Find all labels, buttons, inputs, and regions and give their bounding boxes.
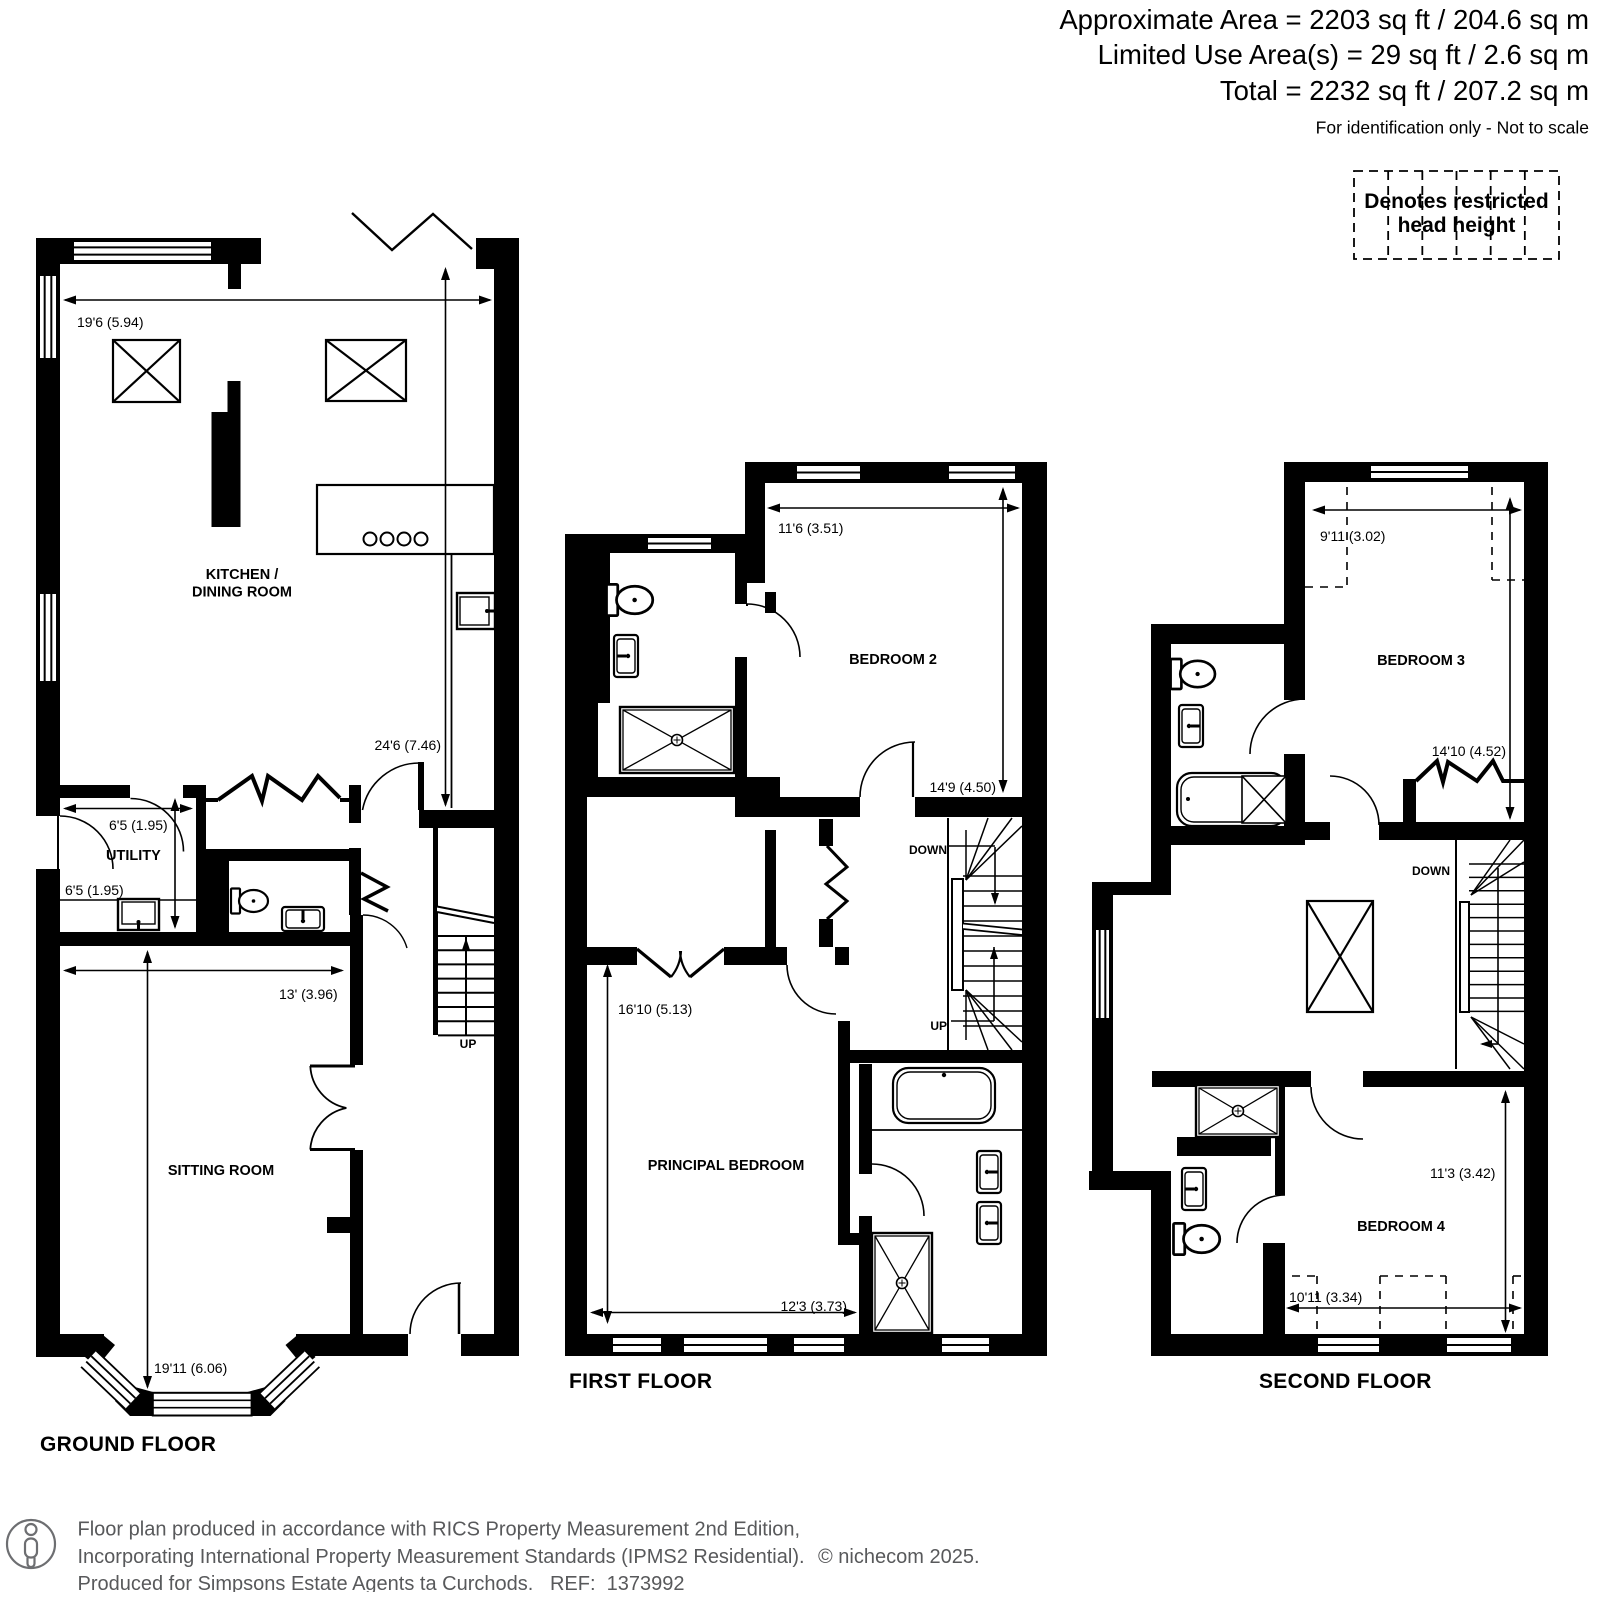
svg-text:© nichecom 2025.: © nichecom 2025. <box>818 1546 980 1568</box>
svg-text:DOWN: DOWN <box>909 843 947 857</box>
svg-text:FIRST FLOOR: FIRST FLOOR <box>569 1370 712 1393</box>
svg-text:UTILITY: UTILITY <box>106 848 161 864</box>
svg-text:BEDROOM 3: BEDROOM 3 <box>1377 653 1465 669</box>
svg-text:BEDROOM 2: BEDROOM 2 <box>849 652 937 668</box>
svg-text:11'6 (3.51): 11'6 (3.51) <box>778 520 843 536</box>
svg-text:Floor plan produced in accorda: Floor plan produced in accordance with R… <box>78 1519 801 1541</box>
svg-text:PRINCIPAL BEDROOM: PRINCIPAL BEDROOM <box>648 1158 805 1174</box>
svg-text:head height: head height <box>1398 214 1516 237</box>
svg-text:UP: UP <box>460 1037 477 1051</box>
svg-text:9'11 (3.02): 9'11 (3.02) <box>1320 528 1385 544</box>
svg-text:6'5 (1.95): 6'5 (1.95) <box>65 882 124 898</box>
svg-text:6'5 (1.95): 6'5 (1.95) <box>109 817 168 833</box>
svg-text:Total = 2232 sq ft / 207.2 sq: Total = 2232 sq ft / 207.2 sq m <box>1220 75 1589 106</box>
svg-text:16'10 (5.13): 16'10 (5.13) <box>618 1001 692 1017</box>
svg-text:GROUND FLOOR: GROUND FLOOR <box>40 1433 216 1456</box>
svg-text:Approximate Area = 2203 sq ft: Approximate Area = 2203 sq ft / 204.6 sq… <box>1059 4 1589 35</box>
svg-text:19'6 (5.94): 19'6 (5.94) <box>77 314 144 330</box>
svg-text:19'11 (6.06): 19'11 (6.06) <box>154 1360 227 1376</box>
svg-text:SECOND FLOOR: SECOND FLOOR <box>1259 1370 1432 1393</box>
svg-text:DOWN: DOWN <box>1412 864 1450 878</box>
svg-text:14'9 (4.50): 14'9 (4.50) <box>930 779 997 795</box>
svg-text:For identification only - Not: For identification only - Not to scale <box>1316 118 1589 138</box>
svg-text:UP: UP <box>930 1019 947 1033</box>
svg-text:14'10 (4.52): 14'10 (4.52) <box>1432 743 1506 759</box>
svg-text:13' (3.96): 13' (3.96) <box>279 986 338 1002</box>
svg-text:KITCHEN /: KITCHEN / <box>206 567 279 583</box>
svg-text:24'6 (7.46): 24'6 (7.46) <box>375 737 442 753</box>
svg-text:SITTING ROOM: SITTING ROOM <box>168 1163 274 1179</box>
svg-text:10'11 (3.34): 10'11 (3.34) <box>1289 1289 1362 1305</box>
svg-text:Incorporating International Pr: Incorporating International Property Mea… <box>78 1546 805 1568</box>
svg-text:BEDROOM 4: BEDROOM 4 <box>1357 1219 1445 1235</box>
svg-text:Limited Use Area(s) = 29 sq ft: Limited Use Area(s) = 29 sq ft / 2.6 sq … <box>1098 39 1589 70</box>
svg-text:Denotes restricted: Denotes restricted <box>1364 190 1548 213</box>
svg-text:11'3 (3.42): 11'3 (3.42) <box>1430 1165 1495 1181</box>
svg-text:DINING ROOM: DINING ROOM <box>192 585 292 601</box>
svg-text:12'3 (3.73): 12'3 (3.73) <box>781 1298 848 1314</box>
svg-text:Produced for Simpsons Estate A: Produced for Simpsons Estate Agents ta C… <box>78 1573 685 1592</box>
